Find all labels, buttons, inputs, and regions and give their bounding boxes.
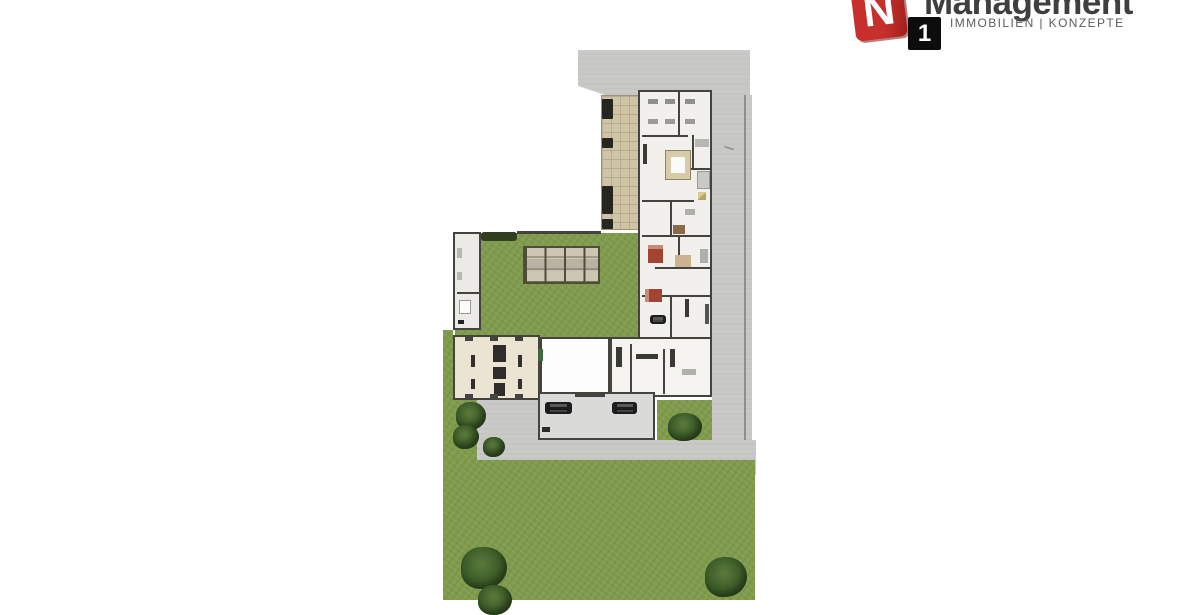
interior-wall [678, 92, 680, 135]
furniture-desk [648, 99, 658, 104]
wall-pier [515, 337, 523, 341]
furniture-cabinet [700, 249, 708, 263]
furniture-desk [685, 99, 695, 104]
garage [538, 392, 655, 440]
furniture-item [493, 345, 506, 362]
bathroom-tiles [697, 171, 710, 189]
road-curb-line [744, 95, 746, 447]
tree [478, 585, 512, 615]
wall-pier [465, 337, 473, 341]
furniture-item [670, 349, 675, 367]
furniture-table [673, 225, 685, 234]
furniture-counter [643, 144, 647, 164]
planter-box [602, 99, 613, 119]
furniture-cabinet [682, 369, 696, 375]
boundary-wall [517, 231, 601, 234]
furniture-item [542, 427, 550, 432]
furniture-cabinet [695, 139, 709, 147]
interior-wall [642, 200, 694, 202]
furniture-counter [685, 299, 689, 317]
left-lawn-strip [443, 330, 453, 460]
interior-wall [630, 344, 632, 394]
furniture-item [471, 355, 475, 367]
raised-beds [523, 246, 600, 284]
wall-pier [490, 394, 498, 398]
furniture-item [493, 367, 506, 379]
furniture-item [471, 379, 475, 389]
furniture-item [518, 355, 522, 367]
stairs-symbol [698, 192, 706, 200]
planter-box [602, 219, 613, 229]
site-plan [443, 47, 757, 600]
interior-wall [642, 135, 688, 137]
furniture-item [616, 347, 622, 367]
stair-core-inner [671, 157, 685, 173]
furniture-item [636, 354, 658, 359]
planter-box [602, 138, 613, 148]
building-east-wing [638, 90, 712, 340]
company-logo: N 1 Management IMMOBILIEN | KONZEPTE [0, 0, 1200, 60]
wall-pier [490, 337, 498, 341]
door-marker [538, 349, 543, 361]
interior-wall [670, 295, 672, 340]
furniture-desk [685, 119, 695, 124]
hedge-row [481, 232, 517, 241]
furniture-desk [665, 119, 675, 124]
furniture-counter [705, 304, 709, 324]
car-in-garage [650, 315, 666, 324]
furniture-cabinet [457, 248, 462, 258]
interior-wall [457, 292, 479, 294]
garage-wall-segment [575, 394, 605, 397]
wall-pier [515, 394, 523, 398]
building-white-hall [540, 337, 610, 397]
interior-wall [663, 349, 665, 394]
furniture-bed [648, 245, 663, 263]
building-south-rooms [610, 337, 712, 397]
furniture-cabinet [457, 272, 462, 280]
interior-wall [670, 200, 672, 235]
car [545, 402, 572, 414]
furniture-desk [459, 300, 471, 314]
planter-box [602, 186, 613, 214]
brand-tagline: IMMOBILIEN | KONZEPTE [950, 16, 1125, 30]
interior-wall [655, 267, 712, 269]
furniture-rug [675, 255, 691, 267]
furniture-item [518, 379, 522, 389]
logo-red-square: N [850, 0, 908, 42]
furniture-desk [648, 119, 658, 124]
logo-n-letter: N [861, 0, 898, 35]
furniture-desk [665, 99, 675, 104]
building-south-cream [453, 335, 540, 400]
furniture-bed [645, 289, 662, 302]
car [612, 402, 637, 414]
furniture-cabinet [685, 209, 695, 215]
interior-wall [642, 235, 712, 237]
building-west-wing [453, 232, 481, 330]
wall-pier [465, 394, 473, 398]
furniture-item [458, 320, 464, 324]
logo-one-label: 1 [918, 22, 931, 46]
interior-wall [692, 135, 694, 168]
